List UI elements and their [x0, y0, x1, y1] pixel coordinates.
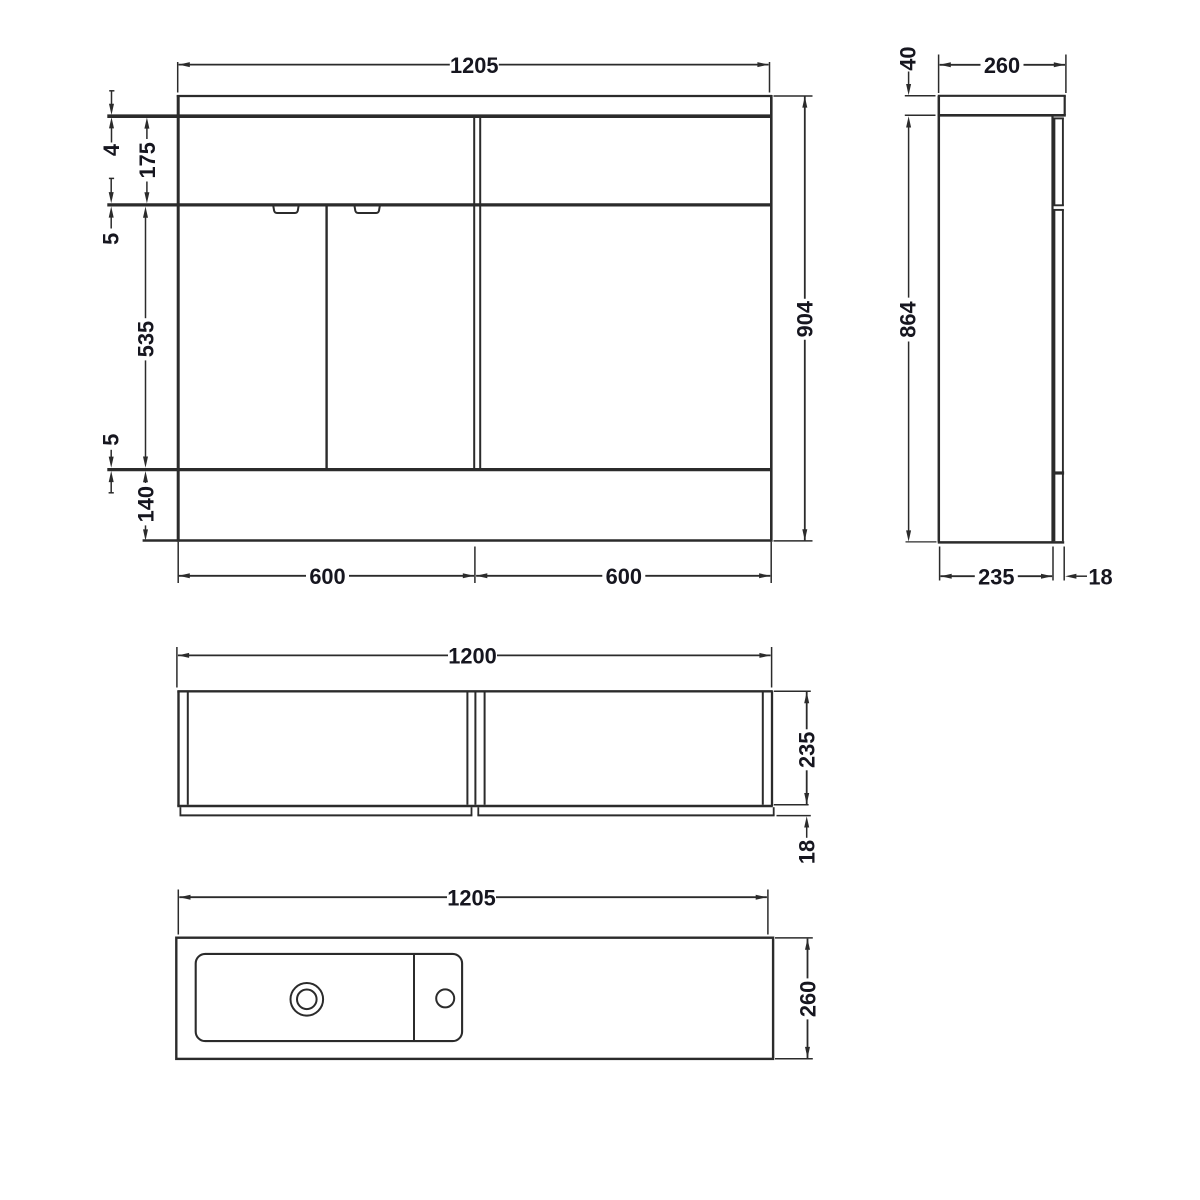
- svg-text:40: 40: [896, 46, 921, 70]
- svg-text:535: 535: [134, 321, 159, 357]
- svg-text:1205: 1205: [447, 886, 496, 911]
- svg-text:600: 600: [309, 564, 345, 589]
- svg-text:864: 864: [896, 301, 921, 337]
- svg-text:140: 140: [133, 486, 158, 522]
- svg-text:18: 18: [794, 840, 819, 864]
- svg-text:600: 600: [606, 564, 642, 589]
- svg-text:4: 4: [99, 144, 124, 156]
- svg-text:260: 260: [795, 981, 820, 1017]
- svg-text:5: 5: [99, 434, 124, 446]
- svg-text:175: 175: [135, 142, 160, 178]
- svg-text:1200: 1200: [448, 644, 497, 669]
- svg-text:904: 904: [793, 301, 818, 337]
- svg-text:235: 235: [795, 732, 820, 768]
- svg-text:260: 260: [984, 53, 1020, 78]
- svg-text:5: 5: [99, 233, 124, 245]
- svg-text:1205: 1205: [450, 53, 499, 78]
- svg-text:235: 235: [978, 565, 1014, 590]
- svg-text:18: 18: [1088, 564, 1112, 589]
